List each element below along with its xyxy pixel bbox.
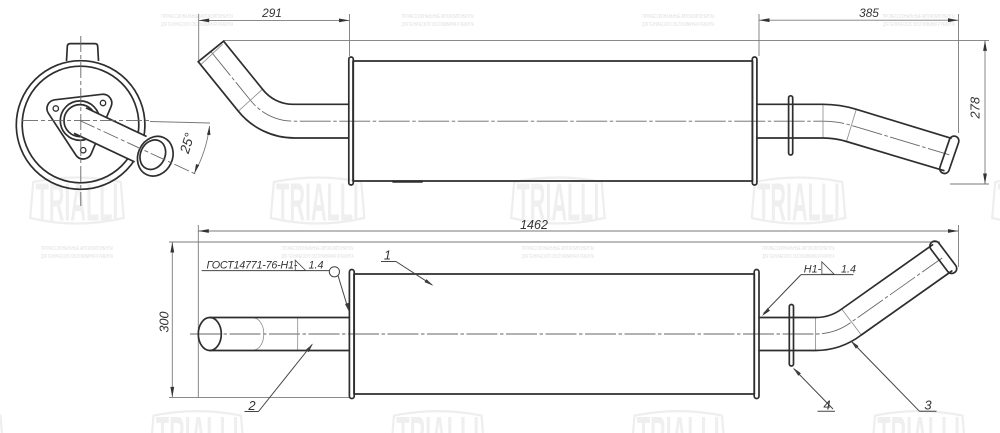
svg-text:ДЛЯ ТЕХНИЧЕСКОГО ОБСЛУЖИВАНИЯ: ДЛЯ ТЕХНИЧЕСКОГО ОБСЛУЖИВАНИЯ И РЕМОНТА [642, 22, 714, 28]
svg-text:ДЛЯ ТЕХНИЧЕСКОГО ОБСЛУЖИВАНИЯ: ДЛЯ ТЕХНИЧЕСКОГО ОБСЛУЖИВАНИЯ И РЕМОНТА [763, 254, 835, 260]
svg-text:25°: 25° [177, 131, 198, 156]
svg-text:1.4: 1.4 [841, 263, 856, 275]
svg-text:ПРОФЕССИОНАЛЬНЫЕ АВТОКОМПОНЕНТ: ПРОФЕССИОНАЛЬНЫЕ АВТОКОМПОНЕНТЫ [282, 246, 354, 252]
svg-text:ГОСТ14771-76-Н1-: ГОСТ14771-76-Н1- [207, 260, 298, 272]
svg-text:ДЛЯ ТЕХНИЧЕСКОГО ОБСЛУЖИВАНИЯ: ДЛЯ ТЕХНИЧЕСКОГО ОБСЛУЖИВАНИЯ И РЕМОНТА [883, 22, 955, 28]
svg-text:ДЛЯ ТЕХНИЧЕСКОГО ОБСЛУЖИВАНИЯ: ДЛЯ ТЕХНИЧЕСКОГО ОБСЛУЖИВАНИЯ И РЕМОНТА [161, 22, 233, 28]
svg-text:ПРОФЕССИОНАЛЬНЫЕ АВТОКОМПОНЕНТ: ПРОФЕССИОНАЛЬНЫЕ АВТОКОМПОНЕНТЫ [41, 246, 113, 252]
svg-text:1.4: 1.4 [309, 260, 324, 272]
svg-text:Н1-: Н1- [804, 263, 822, 275]
svg-text:ПРОФЕССИОНАЛЬНЫЕ АВТОКОМПОНЕНТ: ПРОФЕССИОНАЛЬНЫЕ АВТОКОМПОНЕНТЫ [522, 246, 594, 252]
svg-text:291: 291 [261, 6, 282, 20]
svg-text:ПРОФЕССИОНАЛЬНЫЕ АВТОКОМПОНЕНТ: ПРОФЕССИОНАЛЬНЫЕ АВТОКОМПОНЕНТЫ [402, 14, 474, 20]
svg-text:4: 4 [823, 398, 830, 413]
svg-text:278: 278 [967, 96, 982, 119]
svg-text:ДЛЯ ТЕХНИЧЕСКОГО ОБСЛУЖИВАНИЯ: ДЛЯ ТЕХНИЧЕСКОГО ОБСЛУЖИВАНИЯ И РЕМОНТА [41, 254, 113, 260]
svg-text:ПРОФЕССИОНАЛЬНЫЕ АВТОКОМПОНЕНТ: ПРОФЕССИОНАЛЬНЫЕ АВТОКОМПОНЕНТЫ [161, 14, 233, 20]
svg-text:385: 385 [859, 6, 879, 20]
svg-text:2: 2 [247, 398, 256, 413]
svg-text:3: 3 [924, 398, 932, 413]
svg-text:ДЛЯ ТЕХНИЧЕСКОГО ОБСЛУЖИВАНИЯ: ДЛЯ ТЕХНИЧЕСКОГО ОБСЛУЖИВАНИЯ И РЕМОНТА [522, 254, 594, 260]
svg-text:300: 300 [158, 312, 172, 333]
svg-text:ПРОФЕССИОНАЛЬНЫЕ АВТОКОМПОНЕНТ: ПРОФЕССИОНАЛЬНЫЕ АВТОКОМПОНЕНТЫ [642, 14, 714, 20]
svg-text:ДЛЯ ТЕХНИЧЕСКОГО ОБСЛУЖИВАНИЯ: ДЛЯ ТЕХНИЧЕСКОГО ОБСЛУЖИВАНИЯ И РЕМОНТА [402, 22, 474, 28]
svg-text:ПРОФЕССИОНАЛЬНЫЕ АВТОКОМПОНЕНТ: ПРОФЕССИОНАЛЬНЫЕ АВТОКОМПОНЕНТЫ [763, 246, 835, 252]
svg-text:1: 1 [384, 247, 391, 262]
svg-text:ПРОФЕССИОНАЛЬНЫЕ АВТОКОМПОНЕНТ: ПРОФЕССИОНАЛЬНЫЕ АВТОКОМПОНЕНТЫ [883, 14, 955, 20]
svg-text:1462: 1462 [520, 218, 548, 232]
